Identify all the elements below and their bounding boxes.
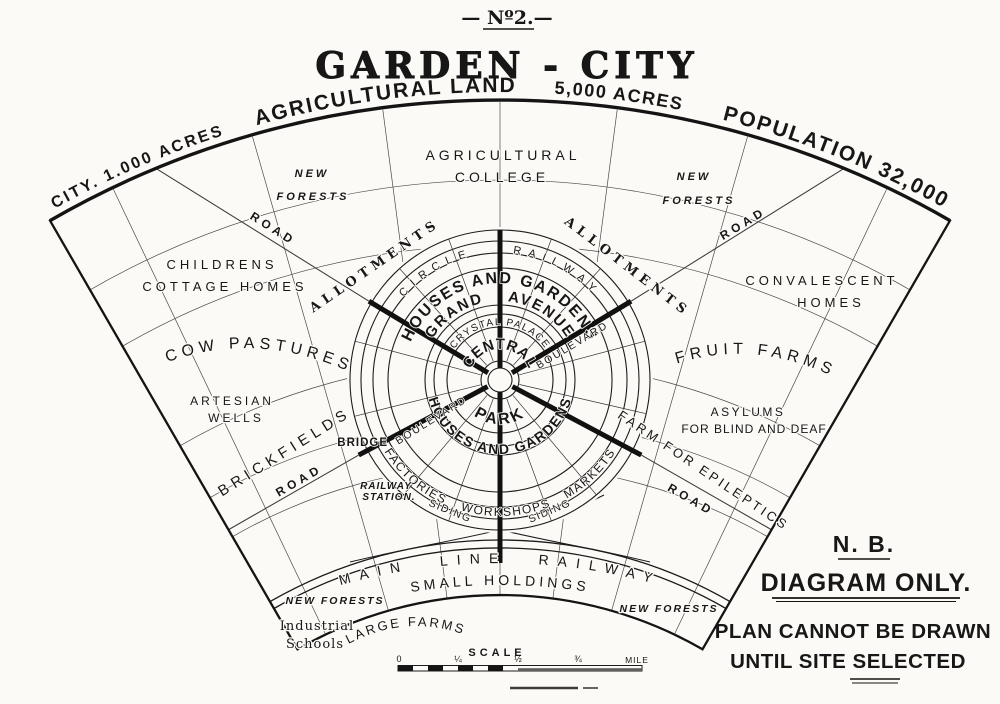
scale-tick-0: 0	[396, 654, 401, 664]
label-new-forests-bottom-right: NEW FORESTS	[619, 603, 718, 615]
label-childrens-cottage-homes: CHILDRENS	[166, 257, 277, 272]
label-new-forests-bottom-left: NEW FORESTS	[285, 595, 384, 607]
label-new-forests-top-right-2: FORESTS	[663, 195, 736, 207]
label-asylums: ASYLUMS	[711, 405, 786, 419]
note-nb: N. B.	[833, 531, 895, 557]
label-asylums-2: FOR BLIND AND DEAF	[681, 422, 826, 436]
scale-tick-half: ½	[514, 654, 522, 664]
note-diagram-only: DIAGRAM ONLY.	[761, 569, 972, 597]
label-industrial-schools-2: Schools	[286, 637, 344, 652]
note-site-line: UNTIL SITE SELECTED	[730, 650, 966, 673]
note-plan-line: PLAN CANNOT BE DRAWN	[715, 620, 992, 643]
label-industrial-schools: Industrial	[280, 619, 354, 634]
label-artesian-wells: ARTESIAN	[190, 394, 274, 408]
label-new-forests-top-right: NEW	[677, 171, 712, 183]
page-title: GARDEN - CITY	[315, 45, 698, 87]
scale-tick-threequarter: ¾	[574, 654, 582, 664]
label-new-forests-top-left: NEW	[295, 168, 330, 180]
garden-city-diagram: CITY. 1.000 ACRES AGRICULTURAL LAND 5,00…	[0, 0, 1000, 704]
label-railway-station: RAILWAY	[360, 481, 412, 492]
scale-tick-quarter: ¼	[454, 654, 462, 664]
label-agricultural-college: AGRICULTURAL	[425, 147, 580, 163]
scale-bar-right-strip	[518, 668, 642, 671]
label-childrens-cottage-homes-2: COTTAGE HOMES	[142, 279, 307, 294]
diagram-canvas: CITY. 1.000 ACRES AGRICULTURAL LAND 5,00…	[0, 0, 1000, 704]
label-convalescent-homes: CONVALESCENT	[745, 273, 898, 288]
label-agricultural-college-2: COLLEGE	[455, 169, 549, 185]
label-railway-station-2: STATION.	[362, 492, 415, 503]
label-convalescent-homes-2: HOMES	[797, 295, 865, 310]
label-new-forests-top-left-2: FORESTS	[277, 191, 350, 203]
header-number: — Nº2.—	[461, 7, 552, 29]
label-artesian-wells-2: WELLS	[208, 411, 264, 425]
label-bridge: BRIDGE	[337, 437, 388, 449]
scale-unit: MILE	[625, 655, 649, 665]
